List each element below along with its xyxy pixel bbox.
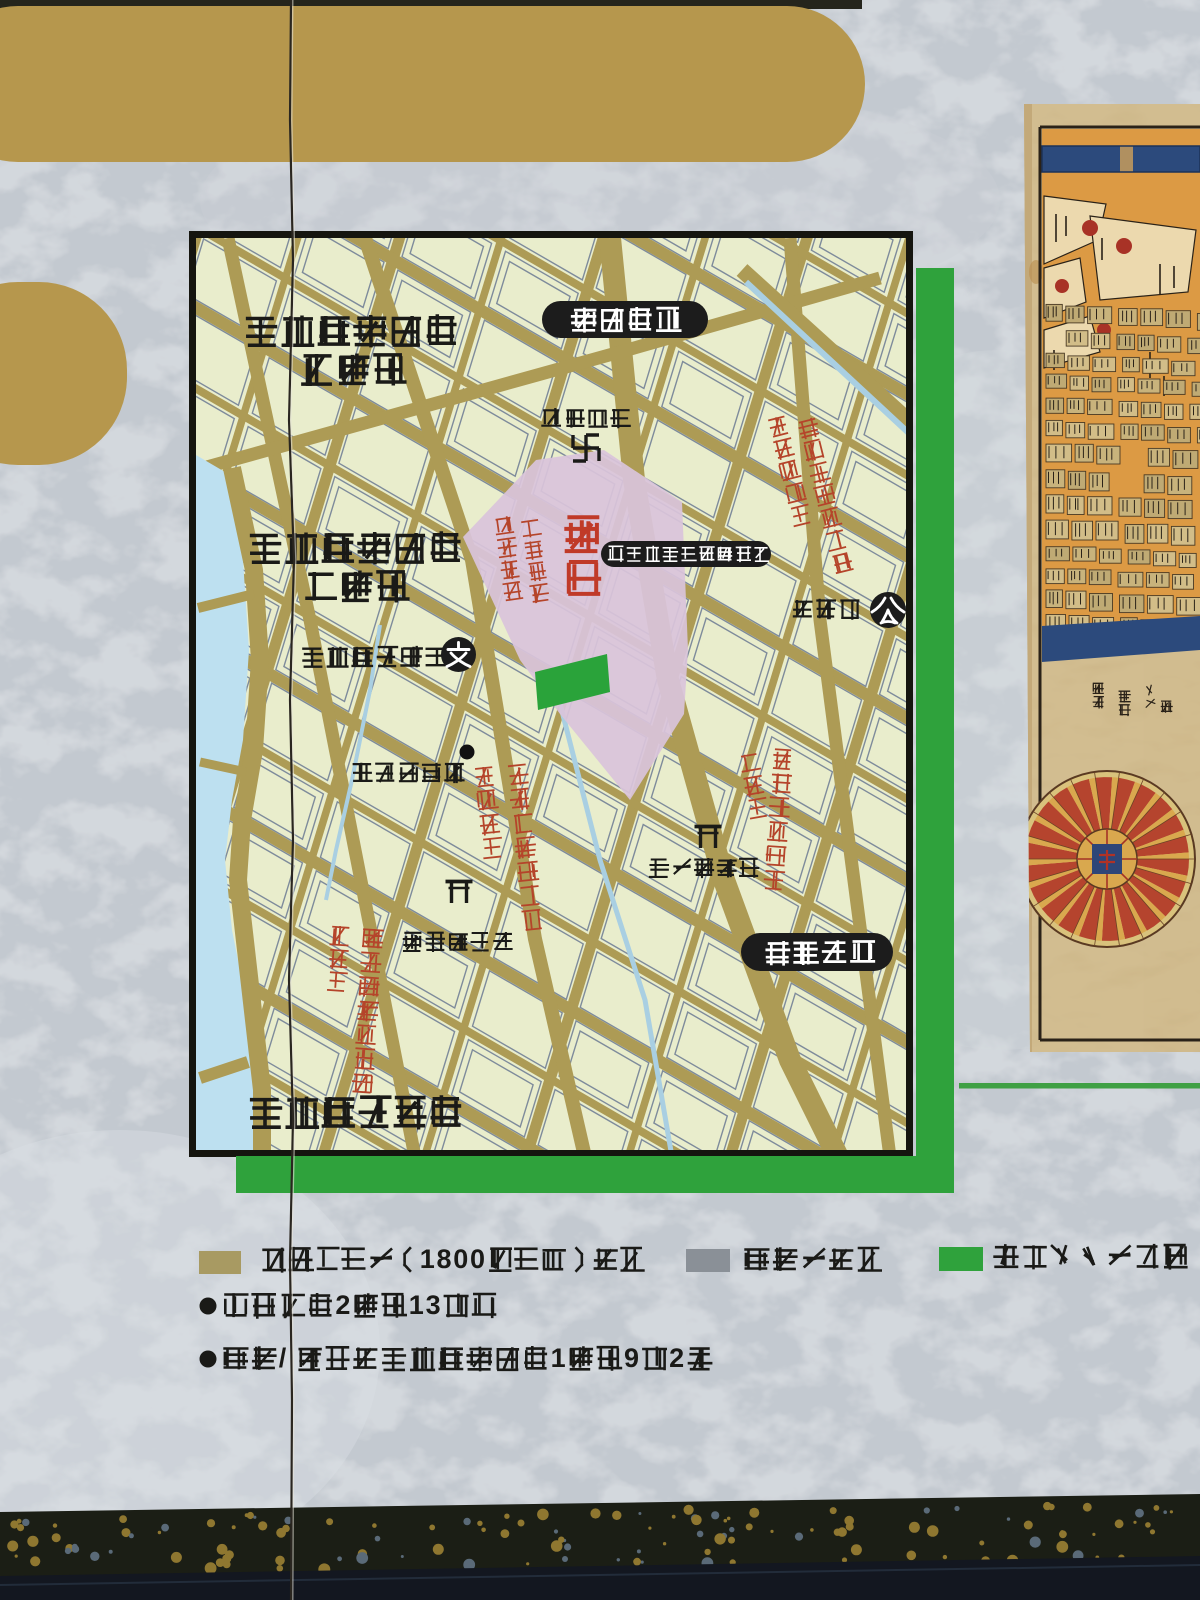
svg-text:2: 2 xyxy=(335,1290,350,1320)
svg-text:0: 0 xyxy=(453,1244,468,1274)
svg-text:/: / xyxy=(279,1343,287,1373)
svg-text:8: 8 xyxy=(437,1244,452,1274)
svg-text:0: 0 xyxy=(470,1244,485,1274)
svg-text:1: 1 xyxy=(551,1343,566,1373)
svg-text:2: 2 xyxy=(669,1343,684,1373)
svg-text:3: 3 xyxy=(426,1290,441,1320)
svg-text:1: 1 xyxy=(409,1290,424,1320)
svg-text:1: 1 xyxy=(420,1244,435,1274)
svg-text:9: 9 xyxy=(624,1343,639,1373)
